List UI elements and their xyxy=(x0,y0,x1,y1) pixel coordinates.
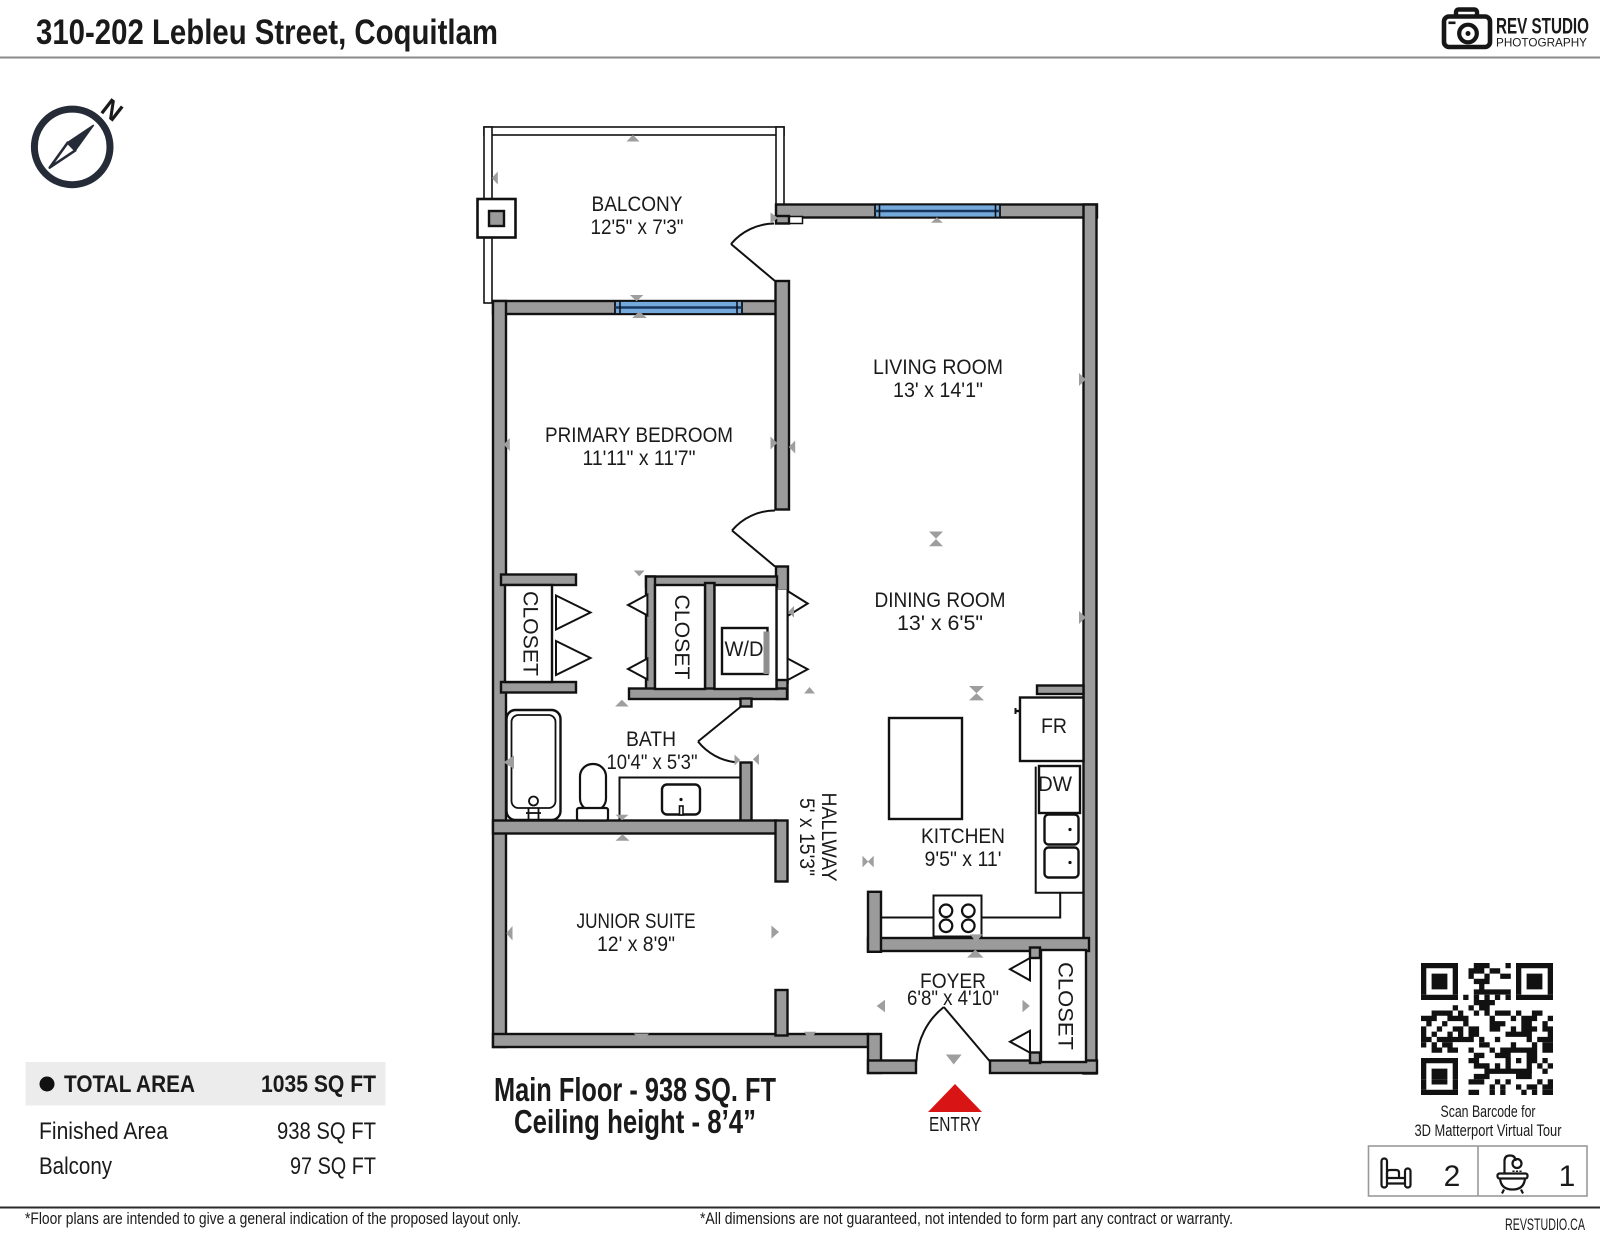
svg-text:*Floor plans are intended to g: *Floor plans are intended to give a gene… xyxy=(25,1210,521,1228)
svg-text:11'11" x 11'7": 11'11" x 11'7" xyxy=(583,447,696,470)
svg-text:REVSTUDIO.CA: REVSTUDIO.CA xyxy=(1505,1215,1585,1234)
svg-text:KITCHEN: KITCHEN xyxy=(921,825,1005,848)
svg-text:PHOTOGRAPHY: PHOTOGRAPHY xyxy=(1496,36,1587,50)
svg-text:1: 1 xyxy=(1559,1160,1576,1193)
svg-text:W/D: W/D xyxy=(725,638,764,661)
svg-text:Balcony: Balcony xyxy=(39,1153,113,1180)
svg-text:3D Matterport Virtual Tour: 3D Matterport Virtual Tour xyxy=(1415,1121,1562,1140)
svg-text:HALLWAY: HALLWAY xyxy=(817,793,840,882)
svg-text:938 SQ FT: 938 SQ FT xyxy=(277,1118,376,1145)
svg-text:CLOSET: CLOSET xyxy=(670,595,693,680)
svg-text:2: 2 xyxy=(1444,1160,1461,1193)
svg-text:Scan Barcode for: Scan Barcode for xyxy=(1441,1102,1536,1121)
svg-text:DW: DW xyxy=(1038,773,1072,796)
svg-text:10'4" x 5'3": 10'4" x 5'3" xyxy=(607,751,698,774)
svg-text:*All dimensions are not guaran: *All dimensions are not guaranteed, not … xyxy=(700,1210,1233,1228)
svg-text:BALCONY: BALCONY xyxy=(592,193,683,216)
svg-text:13' x 14'1": 13' x 14'1" xyxy=(893,379,983,402)
svg-text:FR: FR xyxy=(1041,715,1067,738)
svg-text:13' x 6'5": 13' x 6'5" xyxy=(897,612,983,635)
svg-text:CLOSET: CLOSET xyxy=(1054,962,1077,1050)
svg-text:PRIMARY BEDROOM: PRIMARY BEDROOM xyxy=(545,424,733,447)
svg-text:JUNIOR SUITE: JUNIOR SUITE xyxy=(577,910,696,933)
svg-text:CLOSET: CLOSET xyxy=(519,591,542,676)
svg-text:ENTRY: ENTRY xyxy=(929,1114,981,1136)
svg-text:1035 SQ FT: 1035 SQ FT xyxy=(261,1071,376,1098)
svg-text:5' x 15'3": 5' x 15'3" xyxy=(795,798,818,876)
svg-text:12'5" x 7'3": 12'5" x 7'3" xyxy=(591,216,684,239)
svg-text:12' x 8'9": 12' x 8'9" xyxy=(597,933,675,956)
svg-text:Ceiling height - 8’4”: Ceiling height - 8’4” xyxy=(514,1103,756,1140)
svg-text:TOTAL AREA: TOTAL AREA xyxy=(64,1071,195,1098)
svg-text:310-202 Lebleu Street, Coquitl: 310-202 Lebleu Street, Coquitlam xyxy=(36,13,498,52)
svg-text:DINING ROOM: DINING ROOM xyxy=(875,589,1006,612)
svg-text:LIVING ROOM: LIVING ROOM xyxy=(873,356,1003,379)
svg-text:97 SQ FT: 97 SQ FT xyxy=(290,1153,376,1180)
svg-text:6'8" x 4'10": 6'8" x 4'10" xyxy=(907,987,999,1010)
svg-text:Finished Area: Finished Area xyxy=(39,1118,168,1145)
svg-text:BATH: BATH xyxy=(626,728,676,751)
svg-text:9'5" x 11': 9'5" x 11' xyxy=(925,848,1002,871)
